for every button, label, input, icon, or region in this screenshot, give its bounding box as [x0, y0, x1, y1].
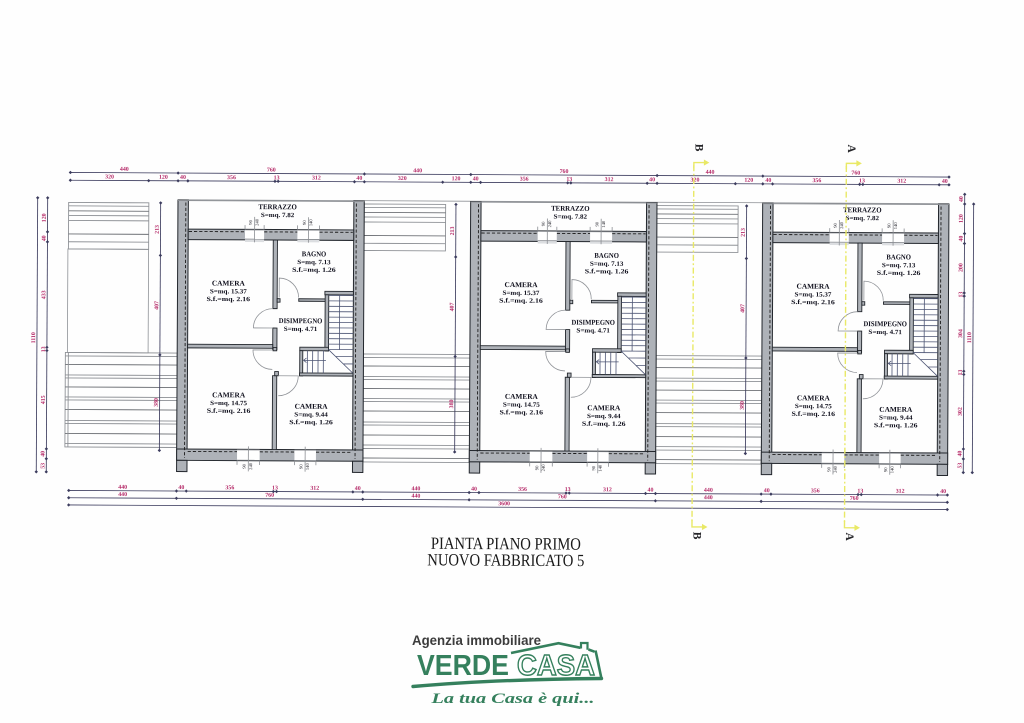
svg-text:90: 90	[591, 465, 596, 470]
svg-text:304: 304	[958, 329, 964, 338]
svg-text:1110: 1110	[967, 332, 973, 343]
svg-text:CAMERA: CAMERA	[587, 403, 621, 412]
svg-text:356: 356	[518, 487, 527, 493]
svg-text:240: 240	[547, 220, 552, 228]
svg-text:90: 90	[887, 223, 892, 228]
svg-text:90: 90	[826, 466, 831, 471]
svg-text:CAMERA: CAMERA	[212, 278, 246, 287]
svg-text:S.f.=mq. 1.26: S.f.=mq. 1.26	[292, 267, 337, 274]
svg-text:140: 140	[601, 220, 606, 228]
svg-text:380: 380	[449, 399, 455, 408]
svg-text:DISIMPEGNO: DISIMPEGNO	[863, 319, 907, 328]
svg-text:S=mq. 14.75: S=mq. 14.75	[503, 402, 541, 409]
svg-text:440: 440	[704, 488, 713, 494]
svg-text:320: 320	[691, 178, 700, 184]
svg-text:TERRAZZO: TERRAZZO	[843, 205, 882, 214]
svg-text:120: 120	[744, 178, 753, 184]
svg-text:CAMERA: CAMERA	[295, 402, 329, 411]
svg-text:90: 90	[595, 221, 600, 226]
svg-text:S=mq. 7.82: S=mq. 7.82	[261, 212, 295, 219]
svg-text:320: 320	[105, 174, 114, 180]
svg-text:120: 120	[452, 176, 461, 182]
svg-text:S.f.=mq. 2.16: S.f.=mq. 2.16	[791, 299, 836, 306]
svg-text:La tua Casa è qui...: La tua Casa è qui...	[430, 691, 594, 707]
svg-text:40: 40	[471, 487, 477, 493]
svg-text:213: 213	[450, 226, 456, 235]
svg-text:120: 120	[959, 214, 965, 223]
svg-text:140: 140	[893, 222, 898, 230]
svg-text:302: 302	[958, 407, 964, 416]
svg-text:440: 440	[120, 167, 129, 173]
svg-text:S.f.=mq. 1.26: S.f.=mq. 1.26	[877, 270, 922, 277]
svg-text:40: 40	[648, 487, 654, 493]
svg-text:440: 440	[704, 495, 713, 501]
svg-text:90: 90	[298, 464, 303, 469]
svg-text:TERRAZZO: TERRAZZO	[551, 204, 590, 213]
svg-text:440: 440	[411, 494, 420, 500]
svg-text:380: 380	[154, 398, 160, 407]
svg-text:S=mq. 7.13: S=mq. 7.13	[882, 262, 916, 269]
svg-text:13: 13	[41, 346, 47, 352]
svg-text:S=mq. 7.13: S=mq. 7.13	[590, 261, 624, 268]
svg-text:S=mq. 15.37: S=mq. 15.37	[795, 291, 833, 298]
svg-text:433: 433	[41, 290, 47, 299]
svg-text:CAMERA: CAMERA	[505, 392, 539, 401]
svg-text:407: 407	[740, 304, 746, 313]
svg-text:240: 240	[248, 462, 253, 470]
svg-text:S=mq. 15.37: S=mq. 15.37	[503, 290, 541, 297]
svg-text:S.f.=mq. 2.16: S.f.=mq. 2.16	[206, 296, 251, 303]
svg-text:13: 13	[859, 178, 865, 184]
svg-text:S.f.=mq. 1.26: S.f.=mq. 1.26	[582, 421, 627, 428]
svg-text:S=mq. 4.71: S=mq. 4.71	[284, 326, 318, 333]
svg-text:S=mq. 14.75: S=mq. 14.75	[210, 400, 248, 407]
svg-text:40: 40	[765, 178, 771, 184]
svg-text:VERDE: VERDE	[417, 650, 509, 682]
svg-text:40: 40	[178, 485, 184, 491]
svg-text:90: 90	[534, 465, 539, 470]
svg-text:40: 40	[958, 451, 964, 457]
svg-text:S.f.=mq. 1.26: S.f.=mq. 1.26	[874, 422, 919, 429]
svg-text:BAGNO: BAGNO	[594, 251, 619, 260]
svg-text:S=mq. 7.13: S=mq. 7.13	[297, 259, 331, 266]
svg-text:A: A	[845, 145, 857, 154]
svg-text:S=mq. 9.44: S=mq. 9.44	[879, 414, 913, 421]
svg-text:440: 440	[118, 492, 127, 498]
svg-text:CAMERA: CAMERA	[879, 405, 913, 414]
svg-text:TERRAZZO: TERRAZZO	[258, 202, 297, 211]
svg-text:13: 13	[566, 177, 572, 183]
svg-text:40: 40	[649, 177, 655, 183]
svg-text:240: 240	[541, 464, 546, 472]
svg-text:40: 40	[41, 451, 47, 457]
svg-text:320: 320	[398, 176, 407, 182]
svg-text:13: 13	[272, 486, 278, 492]
svg-text:90: 90	[242, 463, 247, 468]
svg-text:90: 90	[883, 467, 888, 472]
svg-text:200: 200	[959, 263, 965, 272]
svg-text:13: 13	[857, 489, 863, 495]
svg-text:S=mq. 4.71: S=mq. 4.71	[868, 329, 902, 336]
svg-text:240: 240	[839, 221, 844, 229]
svg-text:13: 13	[565, 487, 571, 493]
svg-text:440: 440	[706, 170, 715, 176]
svg-text:312: 312	[603, 487, 612, 493]
svg-text:CAMERA: CAMERA	[797, 393, 831, 402]
svg-text:B: B	[690, 532, 702, 540]
svg-text:40: 40	[959, 196, 965, 202]
svg-text:140: 140	[598, 464, 603, 472]
svg-text:CAMERA: CAMERA	[505, 280, 539, 289]
svg-text:356: 356	[225, 485, 234, 491]
svg-text:DISIMPEGNO: DISIMPEGNO	[279, 316, 323, 325]
svg-text:356: 356	[520, 177, 529, 183]
svg-text:S=mq. 15.37: S=mq. 15.37	[210, 288, 248, 295]
svg-text:440: 440	[413, 168, 422, 174]
svg-text:3600: 3600	[498, 501, 510, 507]
svg-text:40: 40	[942, 179, 948, 185]
svg-text:240: 240	[254, 218, 259, 226]
svg-text:90: 90	[248, 219, 253, 224]
svg-text:40: 40	[180, 175, 186, 181]
svg-text:90: 90	[302, 220, 307, 225]
svg-text:53: 53	[957, 463, 963, 469]
svg-text:NUOVO FABBRICATO 5: NUOVO FABBRICATO 5	[427, 550, 584, 570]
svg-text:312: 312	[310, 486, 319, 492]
svg-text:380: 380	[740, 401, 746, 410]
svg-text:40: 40	[356, 176, 362, 182]
svg-text:S.f.=mq. 2.16: S.f.=mq. 2.16	[207, 408, 252, 415]
svg-text:356: 356	[812, 178, 821, 184]
svg-text:213: 213	[741, 228, 747, 237]
svg-text:120: 120	[42, 213, 48, 222]
svg-text:40: 40	[764, 488, 770, 494]
svg-text:407: 407	[154, 301, 160, 310]
svg-text:312: 312	[312, 176, 321, 182]
svg-text:DISIMPEGNO: DISIMPEGNO	[571, 318, 615, 327]
svg-text:120: 120	[159, 175, 168, 181]
svg-text:S=mq. 9.44: S=mq. 9.44	[587, 413, 621, 420]
svg-text:40: 40	[355, 486, 361, 492]
svg-text:40: 40	[959, 236, 965, 242]
svg-text:S.f.=mq. 2.16: S.f.=mq. 2.16	[499, 297, 544, 304]
svg-text:760: 760	[851, 171, 860, 177]
svg-text:312: 312	[605, 177, 614, 183]
svg-text:760: 760	[850, 496, 859, 502]
svg-text:40: 40	[42, 235, 48, 241]
svg-text:S.f.=mq. 1.26: S.f.=mq. 1.26	[289, 419, 334, 426]
svg-text:S.f.=mq. 2.16: S.f.=mq. 2.16	[791, 411, 836, 418]
svg-text:213: 213	[155, 225, 161, 234]
svg-text:1110: 1110	[31, 332, 37, 343]
svg-text:S=mq. 9.44: S=mq. 9.44	[294, 411, 328, 418]
svg-text:90: 90	[541, 221, 546, 226]
svg-text:Agenzia immobiliare: Agenzia immobiliare	[412, 632, 541, 648]
svg-text:53: 53	[40, 463, 46, 469]
svg-text:760: 760	[265, 493, 274, 499]
svg-text:S=mq. 14.75: S=mq. 14.75	[795, 403, 833, 410]
svg-text:312: 312	[896, 489, 905, 495]
svg-text:CAMERA: CAMERA	[797, 282, 831, 291]
svg-text:40: 40	[940, 489, 946, 495]
svg-text:BAGNO: BAGNO	[302, 249, 327, 258]
svg-text:13: 13	[958, 292, 964, 298]
svg-text:CAMERA: CAMERA	[212, 390, 246, 399]
svg-text:13: 13	[958, 370, 964, 376]
svg-text:140: 140	[305, 463, 310, 471]
svg-text:140: 140	[308, 219, 313, 227]
svg-text:BAGNO: BAGNO	[886, 252, 911, 261]
svg-text:S.f.=mq. 2.16: S.f.=mq. 2.16	[499, 409, 544, 416]
svg-text:407: 407	[450, 302, 456, 311]
svg-text:140: 140	[890, 466, 895, 474]
svg-text:356: 356	[227, 175, 236, 181]
svg-text:S=mq. 7.82: S=mq. 7.82	[554, 213, 588, 220]
svg-text:B: B	[692, 144, 704, 152]
svg-text:760: 760	[558, 494, 567, 500]
svg-text:760: 760	[560, 169, 569, 175]
svg-text:S.f.=mq. 1.26: S.f.=mq. 1.26	[585, 268, 630, 275]
svg-text:760: 760	[267, 167, 276, 173]
svg-text:13: 13	[274, 175, 280, 181]
svg-text:312: 312	[897, 179, 906, 185]
svg-text:415: 415	[41, 395, 47, 404]
svg-text:90: 90	[833, 222, 838, 227]
svg-text:440: 440	[118, 485, 127, 491]
svg-text:240: 240	[833, 465, 838, 473]
svg-text:40: 40	[473, 176, 479, 182]
svg-text:A: A	[843, 533, 855, 542]
svg-text:S=mq. 4.71: S=mq. 4.71	[576, 327, 610, 334]
svg-text:S=mq. 7.82: S=mq. 7.82	[846, 215, 880, 222]
svg-text:440: 440	[412, 486, 421, 492]
svg-text:356: 356	[811, 488, 820, 494]
